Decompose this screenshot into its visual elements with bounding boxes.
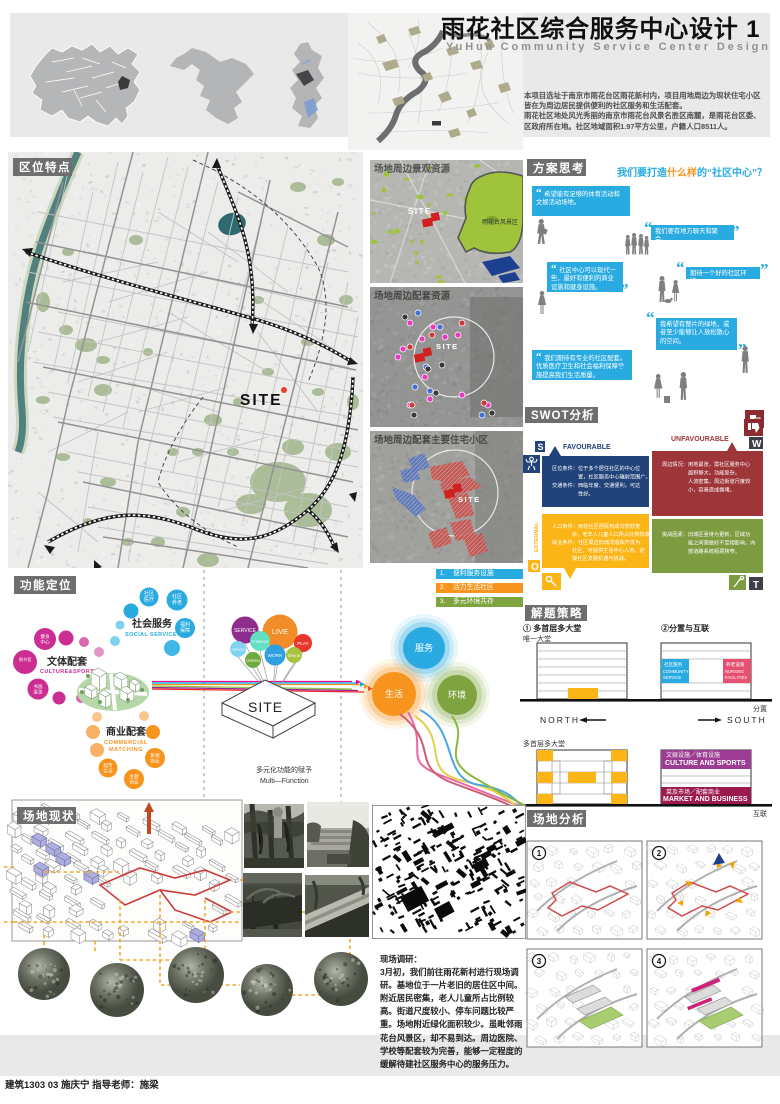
svg-text:4: 4: [657, 957, 662, 966]
svg-text:1: 1: [537, 849, 542, 858]
svg-text:2: 2: [657, 849, 662, 858]
svg-text:3: 3: [537, 957, 542, 966]
